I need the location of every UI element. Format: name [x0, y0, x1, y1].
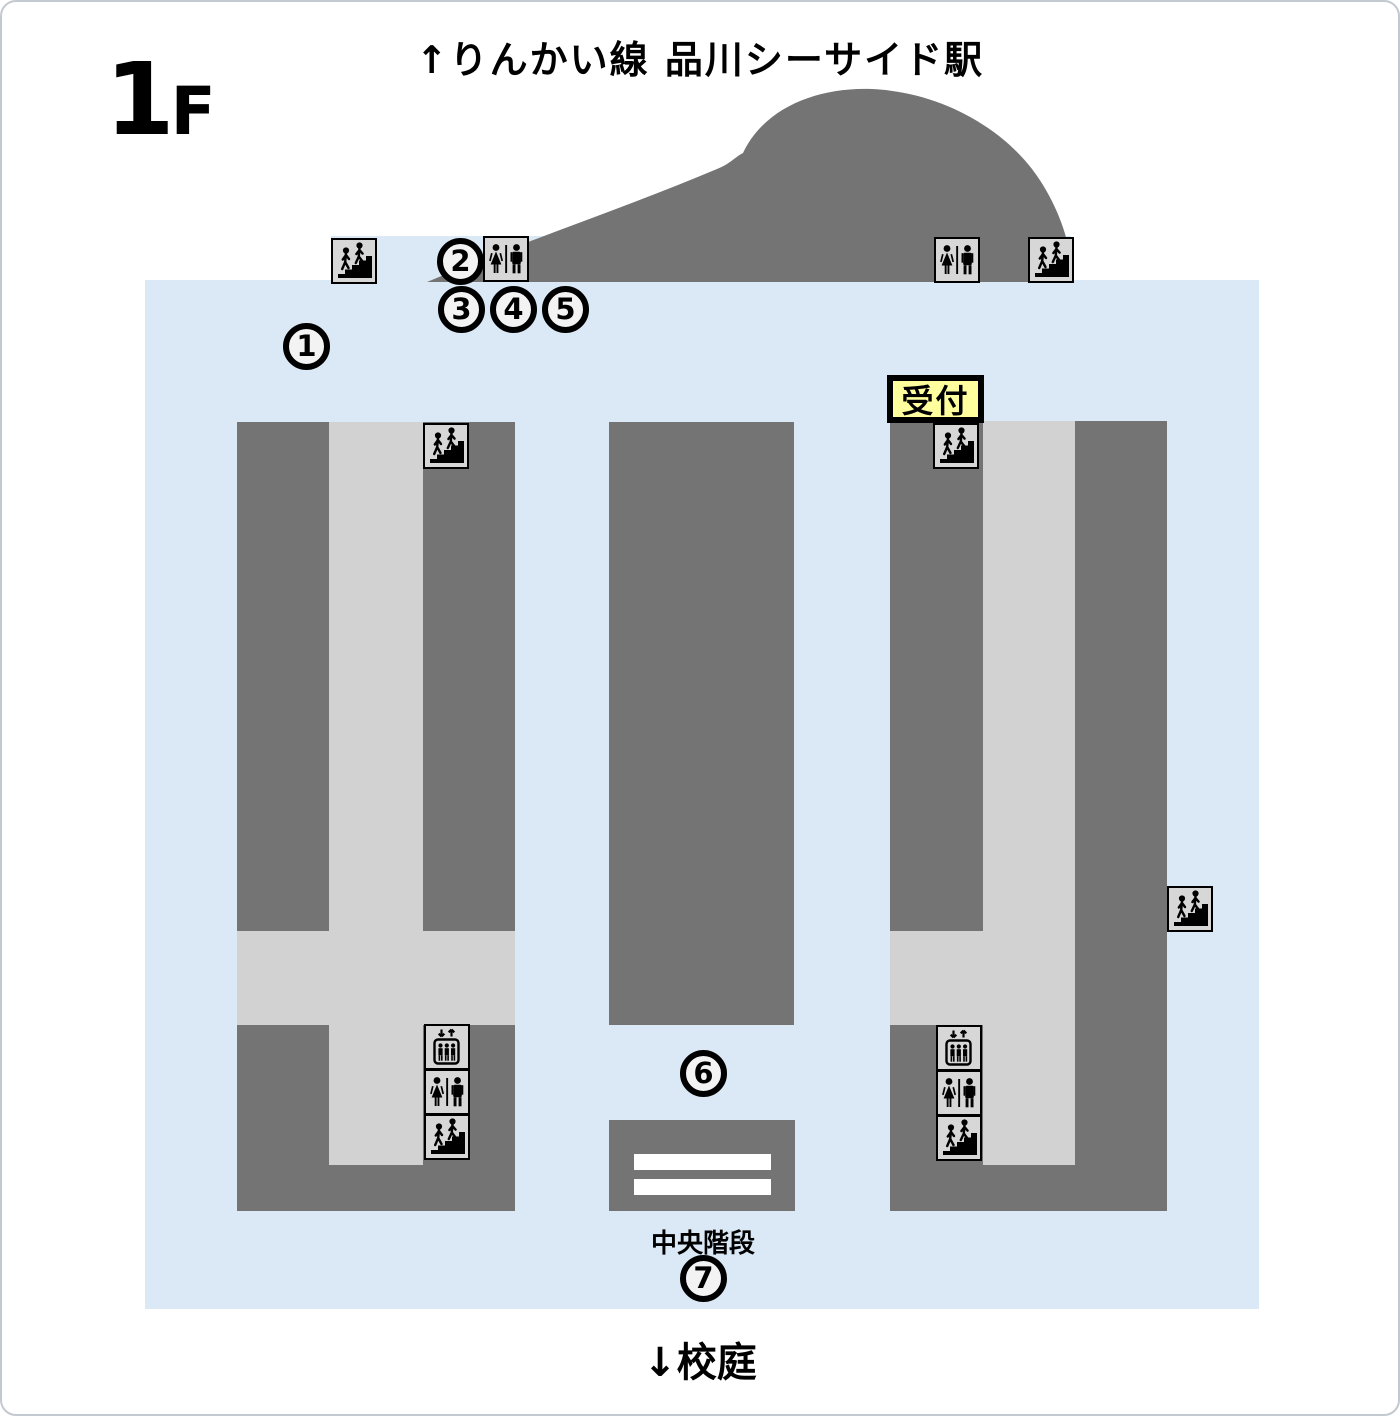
building-left-corridor-vertical [329, 422, 423, 1165]
map-marker-4: 4 [490, 286, 537, 333]
schoolyard-direction-label: ↓校庭 [643, 1330, 757, 1388]
elevator-icon [424, 1024, 470, 1070]
floor-number: 1 [105, 50, 171, 150]
floor-label: 1F [105, 50, 216, 150]
building-left-corridor-horizontal [237, 931, 515, 1025]
stairs-icon [1028, 237, 1074, 283]
map-marker-2: 2 [437, 238, 484, 285]
restroom-icon [936, 1070, 982, 1116]
map-marker-5: 5 [542, 286, 589, 333]
restroom-icon [483, 236, 529, 282]
building-right-corridor-horizontal [890, 931, 1075, 1025]
floor-map-page: ↑りんかい線 品川シーサイド駅 1F 中央階段 受付 1 2 3 4 5 6 7 [0, 0, 1400, 1416]
map-marker-1: 1 [283, 323, 330, 370]
elevator-icon [936, 1025, 982, 1071]
restroom-icon [934, 237, 980, 283]
map-marker-7: 7 [680, 1255, 727, 1302]
floor-suffix: F [171, 79, 216, 145]
map-marker-3: 3 [438, 286, 485, 333]
stairs-icon [933, 423, 979, 469]
restroom-icon [424, 1069, 470, 1115]
building-right-corridor-vertical [983, 421, 1075, 1165]
stairs-icon [1167, 886, 1213, 932]
stairs-icon [936, 1115, 982, 1161]
map-marker-6: 6 [680, 1050, 727, 1097]
building-center [609, 422, 794, 1025]
central-staircase-step-bar [634, 1179, 771, 1195]
stairs-icon [423, 423, 469, 469]
stairs-icon [424, 1114, 470, 1160]
central-staircase-label: 中央階段 [651, 1223, 755, 1260]
reception-badge: 受付 [887, 375, 984, 423]
central-staircase-step-bar [634, 1154, 771, 1170]
stairs-icon [331, 238, 377, 284]
station-direction-label: ↑りんかい線 品川シーサイド駅 [416, 29, 984, 84]
